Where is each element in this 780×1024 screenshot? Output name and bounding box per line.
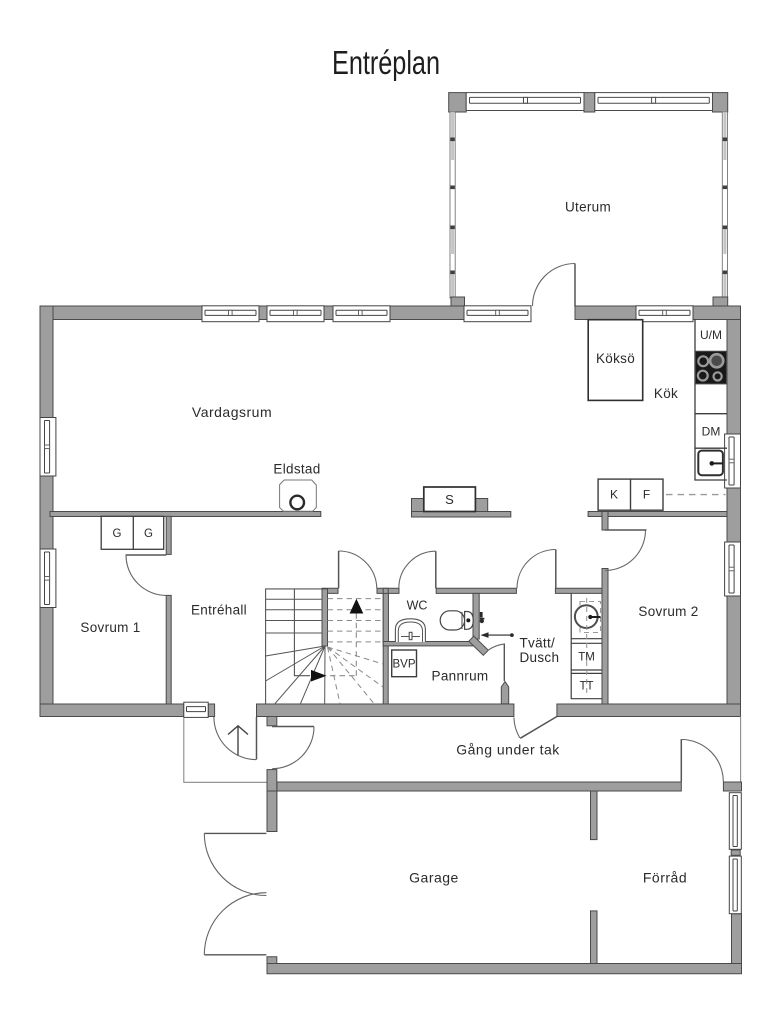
svg-text:G: G (113, 528, 122, 540)
svg-text:Sovrum 2: Sovrum 2 (638, 604, 698, 619)
svg-text:Eldstad: Eldstad (273, 462, 320, 477)
svg-text:Vardagsrum: Vardagsrum (192, 404, 272, 420)
svg-text:Kök: Kök (654, 386, 678, 401)
svg-text:TM: TM (578, 652, 595, 664)
svg-text:G: G (144, 528, 153, 540)
svg-text:Köksö: Köksö (596, 351, 635, 366)
svg-text:K: K (610, 488, 618, 502)
svg-text:Förråd: Förråd (643, 870, 687, 886)
svg-text:Entréplan: Entréplan (332, 44, 440, 81)
svg-text:Tvätt/: Tvätt/ (520, 636, 556, 651)
svg-text:TT: TT (579, 681, 593, 693)
svg-text:Sovrum 1: Sovrum 1 (80, 620, 140, 635)
svg-text:Uterum: Uterum (565, 200, 611, 215)
svg-text:WC: WC (407, 599, 428, 613)
svg-text:U/M: U/M (700, 328, 722, 342)
svg-text:Garage: Garage (409, 870, 459, 886)
svg-text:Entréhall: Entréhall (191, 603, 247, 618)
svg-text:Gång under tak: Gång under tak (456, 742, 560, 758)
svg-text:Dusch: Dusch (520, 650, 560, 665)
svg-text:Pannrum: Pannrum (432, 669, 489, 684)
svg-text:S: S (445, 492, 454, 507)
svg-text:BVP: BVP (392, 659, 415, 671)
svg-text:F: F (643, 488, 650, 502)
svg-text:DM: DM (702, 425, 721, 439)
